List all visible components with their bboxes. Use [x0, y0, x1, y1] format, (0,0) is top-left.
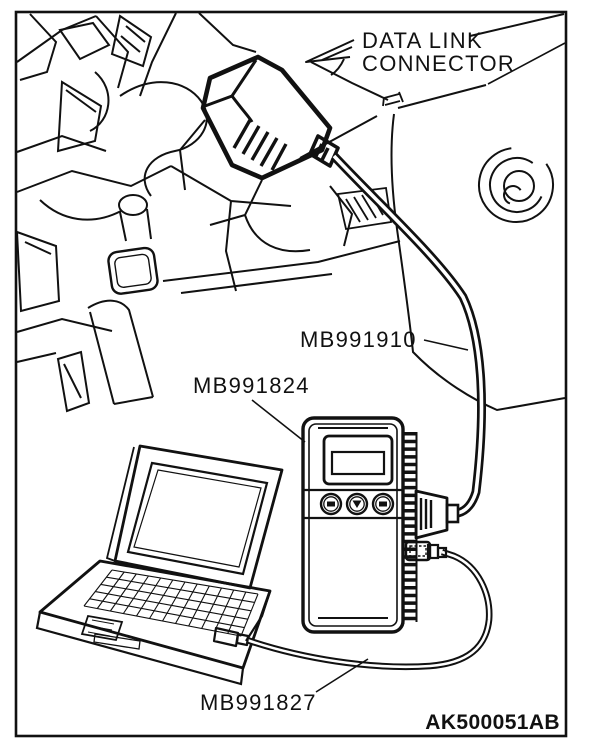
service-manual-figure: DATA LINK CONNECTOR MB991910 MB991824 MB…	[0, 0, 608, 750]
connector-pin-hatch	[234, 120, 286, 170]
figure-id-code: AK500051AB	[425, 711, 560, 734]
door-lock-circles	[464, 133, 567, 236]
dash-opening	[107, 247, 158, 295]
vci-part-label-mb991824: MB991824	[193, 373, 310, 398]
vci-unit-drawing	[303, 418, 458, 632]
cable-part-label-mb991910: MB991910	[300, 327, 417, 352]
leader-arrow-icon	[306, 40, 354, 75]
laptop-drawing	[37, 446, 282, 684]
laptop-screen	[128, 463, 267, 574]
vci-main-connector	[416, 491, 458, 538]
usb-cable-part-label-mb991827: MB991827	[200, 690, 317, 715]
data-link-connector-drawing	[203, 57, 338, 178]
data-link-connector-label-line1: DATA LINK	[362, 28, 483, 53]
vci-buttons	[321, 494, 393, 514]
keyboard-grid	[84, 570, 258, 636]
vci-display	[324, 436, 392, 484]
data-link-connector-label-line2: CONNECTOR	[362, 51, 515, 76]
